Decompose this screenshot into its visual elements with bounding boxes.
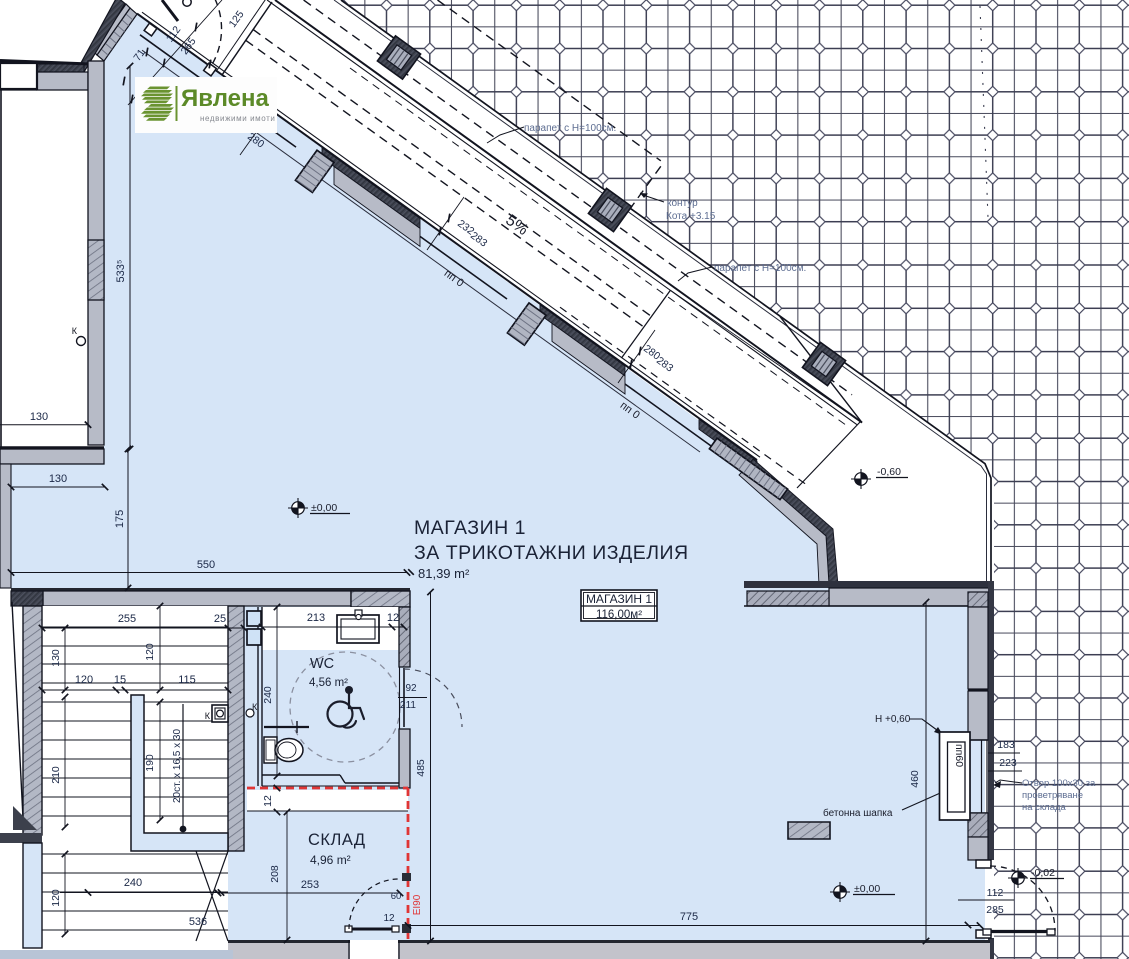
svg-text:бетонна шапка: бетонна шапка [823, 807, 893, 819]
svg-text:130: 130 [49, 473, 67, 485]
svg-text:-0,60: -0,60 [877, 466, 901, 478]
svg-text:К: К [72, 326, 78, 336]
svg-text:120: 120 [144, 643, 156, 661]
svg-text:-0,02: -0,02 [1031, 867, 1055, 879]
svg-text:210: 210 [50, 766, 62, 784]
svg-text:81,39 m²: 81,39 m² [418, 566, 470, 581]
svg-text:183: 183 [997, 739, 1015, 751]
svg-text:130: 130 [50, 649, 62, 667]
svg-text:4,56 m²: 4,56 m² [309, 677, 348, 689]
svg-text:±0,00: ±0,00 [854, 883, 880, 895]
svg-text:±0,00: ±0,00 [311, 502, 337, 514]
svg-text:213: 213 [307, 612, 325, 624]
svg-text:208: 208 [269, 865, 281, 883]
svg-text:недвижими имоти: недвижими имоти [200, 114, 275, 123]
svg-text:116,00м²: 116,00м² [596, 609, 642, 621]
svg-text:12: 12 [262, 795, 274, 807]
svg-text:130: 130 [30, 411, 48, 423]
svg-text:WC: WC [310, 656, 334, 672]
svg-text:МАГАЗИН 1: МАГАЗИН 1 [586, 592, 652, 606]
svg-text:533⁵: 533⁵ [115, 260, 127, 283]
svg-text:60: 60 [391, 891, 402, 902]
svg-text:255: 255 [118, 613, 136, 625]
svg-text:пп60: пп60 [953, 744, 965, 767]
svg-text:485: 485 [415, 759, 427, 777]
svg-text:контур: контур [667, 198, 698, 209]
svg-text:536: 536 [189, 916, 207, 928]
svg-text:парапет с Н=100см.: парапет с Н=100см. [524, 123, 616, 134]
svg-text:12: 12 [383, 913, 395, 924]
svg-text:проветряване: проветряване [1022, 790, 1083, 801]
svg-text:К: К [205, 711, 211, 721]
svg-text:Отвор 100х30 за: Отвор 100х30 за [1022, 778, 1096, 789]
svg-text:120: 120 [75, 674, 93, 686]
svg-text:285: 285 [986, 904, 1004, 916]
svg-text:460: 460 [909, 770, 921, 788]
svg-text:550: 550 [197, 559, 215, 571]
svg-text:190: 190 [144, 754, 156, 772]
svg-text:Явлена: Явлена [181, 85, 269, 112]
svg-text:парапет с Н=100см.: парапет с Н=100см. [714, 263, 806, 274]
svg-text:223: 223 [999, 757, 1017, 769]
svg-text:Кота +3.15: Кота +3.15 [666, 211, 716, 222]
svg-text:25: 25 [214, 613, 226, 625]
svg-text:на склада: на склада [1022, 802, 1067, 813]
svg-text:20ст. х 16,5 х 30: 20ст. х 16,5 х 30 [172, 729, 183, 804]
svg-text:ЗА ТРИКОТАЖНИ ИЗДЕЛИЯ: ЗА ТРИКОТАЖНИ ИЗДЕЛИЯ [414, 542, 689, 564]
svg-text:92: 92 [405, 683, 417, 694]
svg-text:211: 211 [400, 700, 416, 711]
svg-text:175: 175 [114, 510, 126, 528]
svg-text:СКЛАД: СКЛАД [308, 831, 366, 849]
svg-text:15: 15 [114, 674, 126, 686]
svg-text:253: 253 [301, 879, 319, 891]
svg-text:4,96 m²: 4,96 m² [310, 853, 351, 867]
svg-text:Н +0,60: Н +0,60 [875, 714, 911, 725]
svg-text:112: 112 [987, 887, 1004, 899]
svg-text:120: 120 [50, 889, 62, 907]
svg-text:240: 240 [124, 877, 142, 889]
svg-text:115: 115 [178, 674, 196, 686]
svg-text:775: 775 [680, 911, 698, 923]
svg-text:МАГАЗИН 1: МАГАЗИН 1 [414, 517, 526, 539]
svg-text:ЕІ90: ЕІ90 [412, 894, 423, 915]
svg-text:12: 12 [387, 612, 399, 624]
svg-text:240: 240 [262, 686, 274, 704]
